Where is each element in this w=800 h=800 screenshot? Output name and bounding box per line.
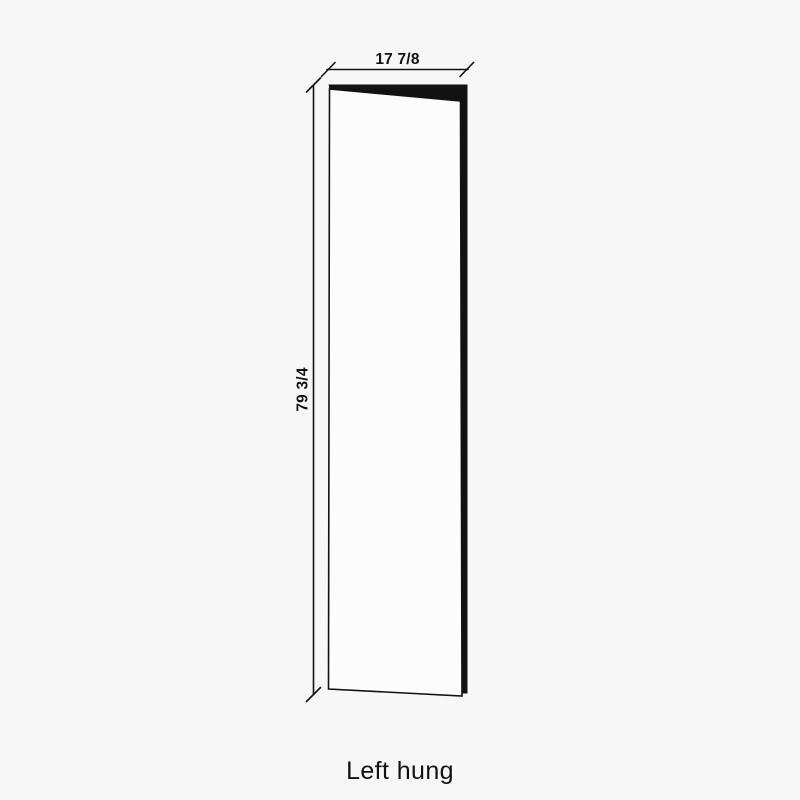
- height-dimension-label: 79 3/4: [295, 367, 312, 411]
- hinge-side-caption: Left hung: [0, 757, 800, 786]
- door-diagram: 17 7/8 79 3/4 Left hung: [0, 0, 800, 800]
- door-diagram-svg: 17 7/8 79 3/4: [0, 0, 800, 800]
- width-dimension-label: 17 7/8: [375, 51, 419, 68]
- door-panel: [329, 89, 463, 696]
